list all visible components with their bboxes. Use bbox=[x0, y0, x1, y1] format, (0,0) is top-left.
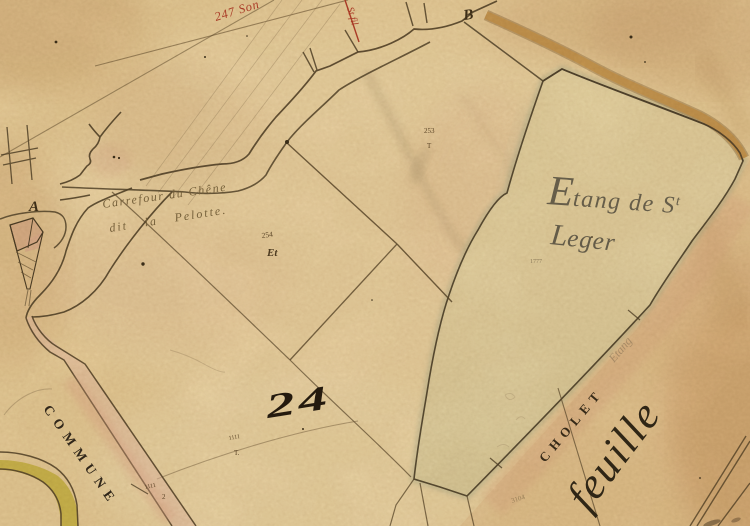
svg-text:1777: 1777 bbox=[530, 259, 542, 265]
svg-text:B: B bbox=[461, 7, 474, 24]
svg-text:253: 253 bbox=[424, 127, 435, 135]
svg-text:T.: T. bbox=[234, 449, 240, 457]
svg-text:254: 254 bbox=[261, 229, 274, 240]
svg-text:T: T bbox=[427, 142, 432, 150]
svg-text:2: 2 bbox=[162, 493, 166, 501]
svg-text:A: A bbox=[28, 199, 39, 215]
svg-text:Et: Et bbox=[266, 247, 278, 259]
